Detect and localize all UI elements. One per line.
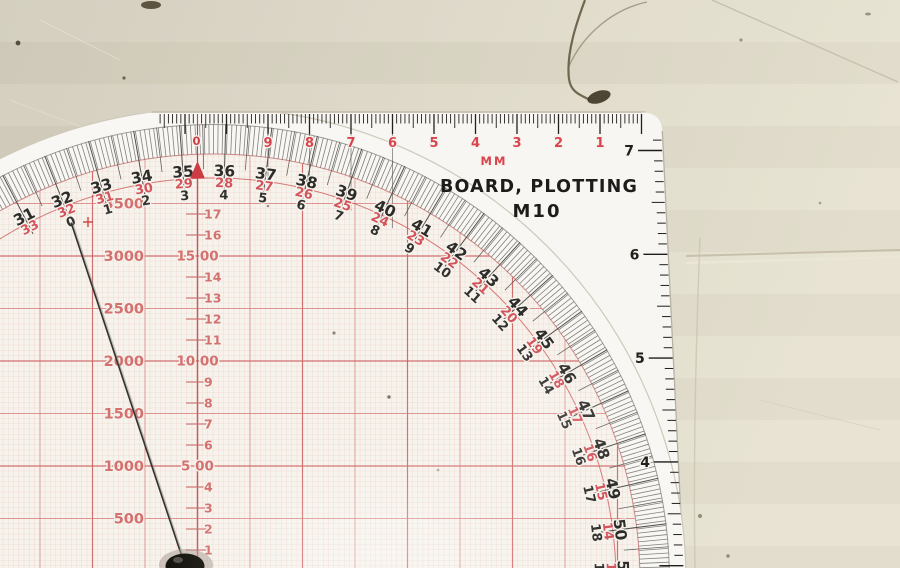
mm-ruler-number: 3	[512, 136, 521, 151]
grid-axis-number: 12	[204, 312, 221, 327]
mm-ruler-number: 4	[471, 136, 480, 151]
grid-axis-number: 6	[204, 438, 213, 453]
grid-axis-number: 7	[204, 417, 213, 432]
grid-left-scale-label: 2000	[104, 354, 144, 370]
grid-left-scale-label: 1000	[104, 459, 144, 475]
mm-ruler-number: 8	[305, 136, 314, 151]
grid-axis-number: 13	[204, 291, 221, 306]
grid-axis-number: 16	[204, 228, 222, 243]
board-title-line2: M10	[513, 201, 562, 222]
grid-axis-number: 11	[204, 333, 221, 348]
plotting-board-photo: 35003000250020001500100050015 0010 005 0…	[0, 0, 900, 568]
ring-label: 5	[257, 191, 268, 207]
mm-ruler-number: 2	[554, 136, 563, 151]
ring-label: 4	[219, 188, 228, 203]
grid-axis-number: 17	[204, 207, 221, 222]
mm-unit-label: MM	[481, 154, 508, 168]
grid-left-scale-label: 2500	[104, 302, 144, 318]
grid-axis-number: 14	[204, 270, 222, 285]
grid-left-scale-label: 500	[114, 512, 144, 528]
ring-label: 3	[180, 189, 190, 205]
grid-center-scale-label: 15 00	[176, 249, 218, 265]
grid-center-scale-label: 10 00	[176, 354, 218, 370]
mm-ruler-number: 5	[429, 136, 438, 151]
grid-left-scale-label: 3000	[104, 249, 144, 265]
grid-axis-number: 8	[204, 396, 213, 411]
mm-ruler-number: 6	[388, 136, 397, 151]
inch-ruler-number: 5	[635, 351, 645, 367]
mm-ruler-number: 9	[263, 136, 272, 151]
zero-index-label: 0	[192, 134, 200, 148]
grid-center-scale-label: 5 00	[181, 459, 214, 475]
inch-ruler-number: 7	[624, 144, 634, 160]
wood-knot-top-left	[141, 1, 161, 9]
inch-ruler-number: 6	[630, 247, 640, 263]
mm-ruler-number: 1	[595, 136, 604, 151]
grid-axis-number: 9	[204, 375, 213, 390]
board-title-line1: BOARD, PLOTTING	[440, 177, 638, 197]
mm-ruler-number: 7	[346, 136, 355, 151]
